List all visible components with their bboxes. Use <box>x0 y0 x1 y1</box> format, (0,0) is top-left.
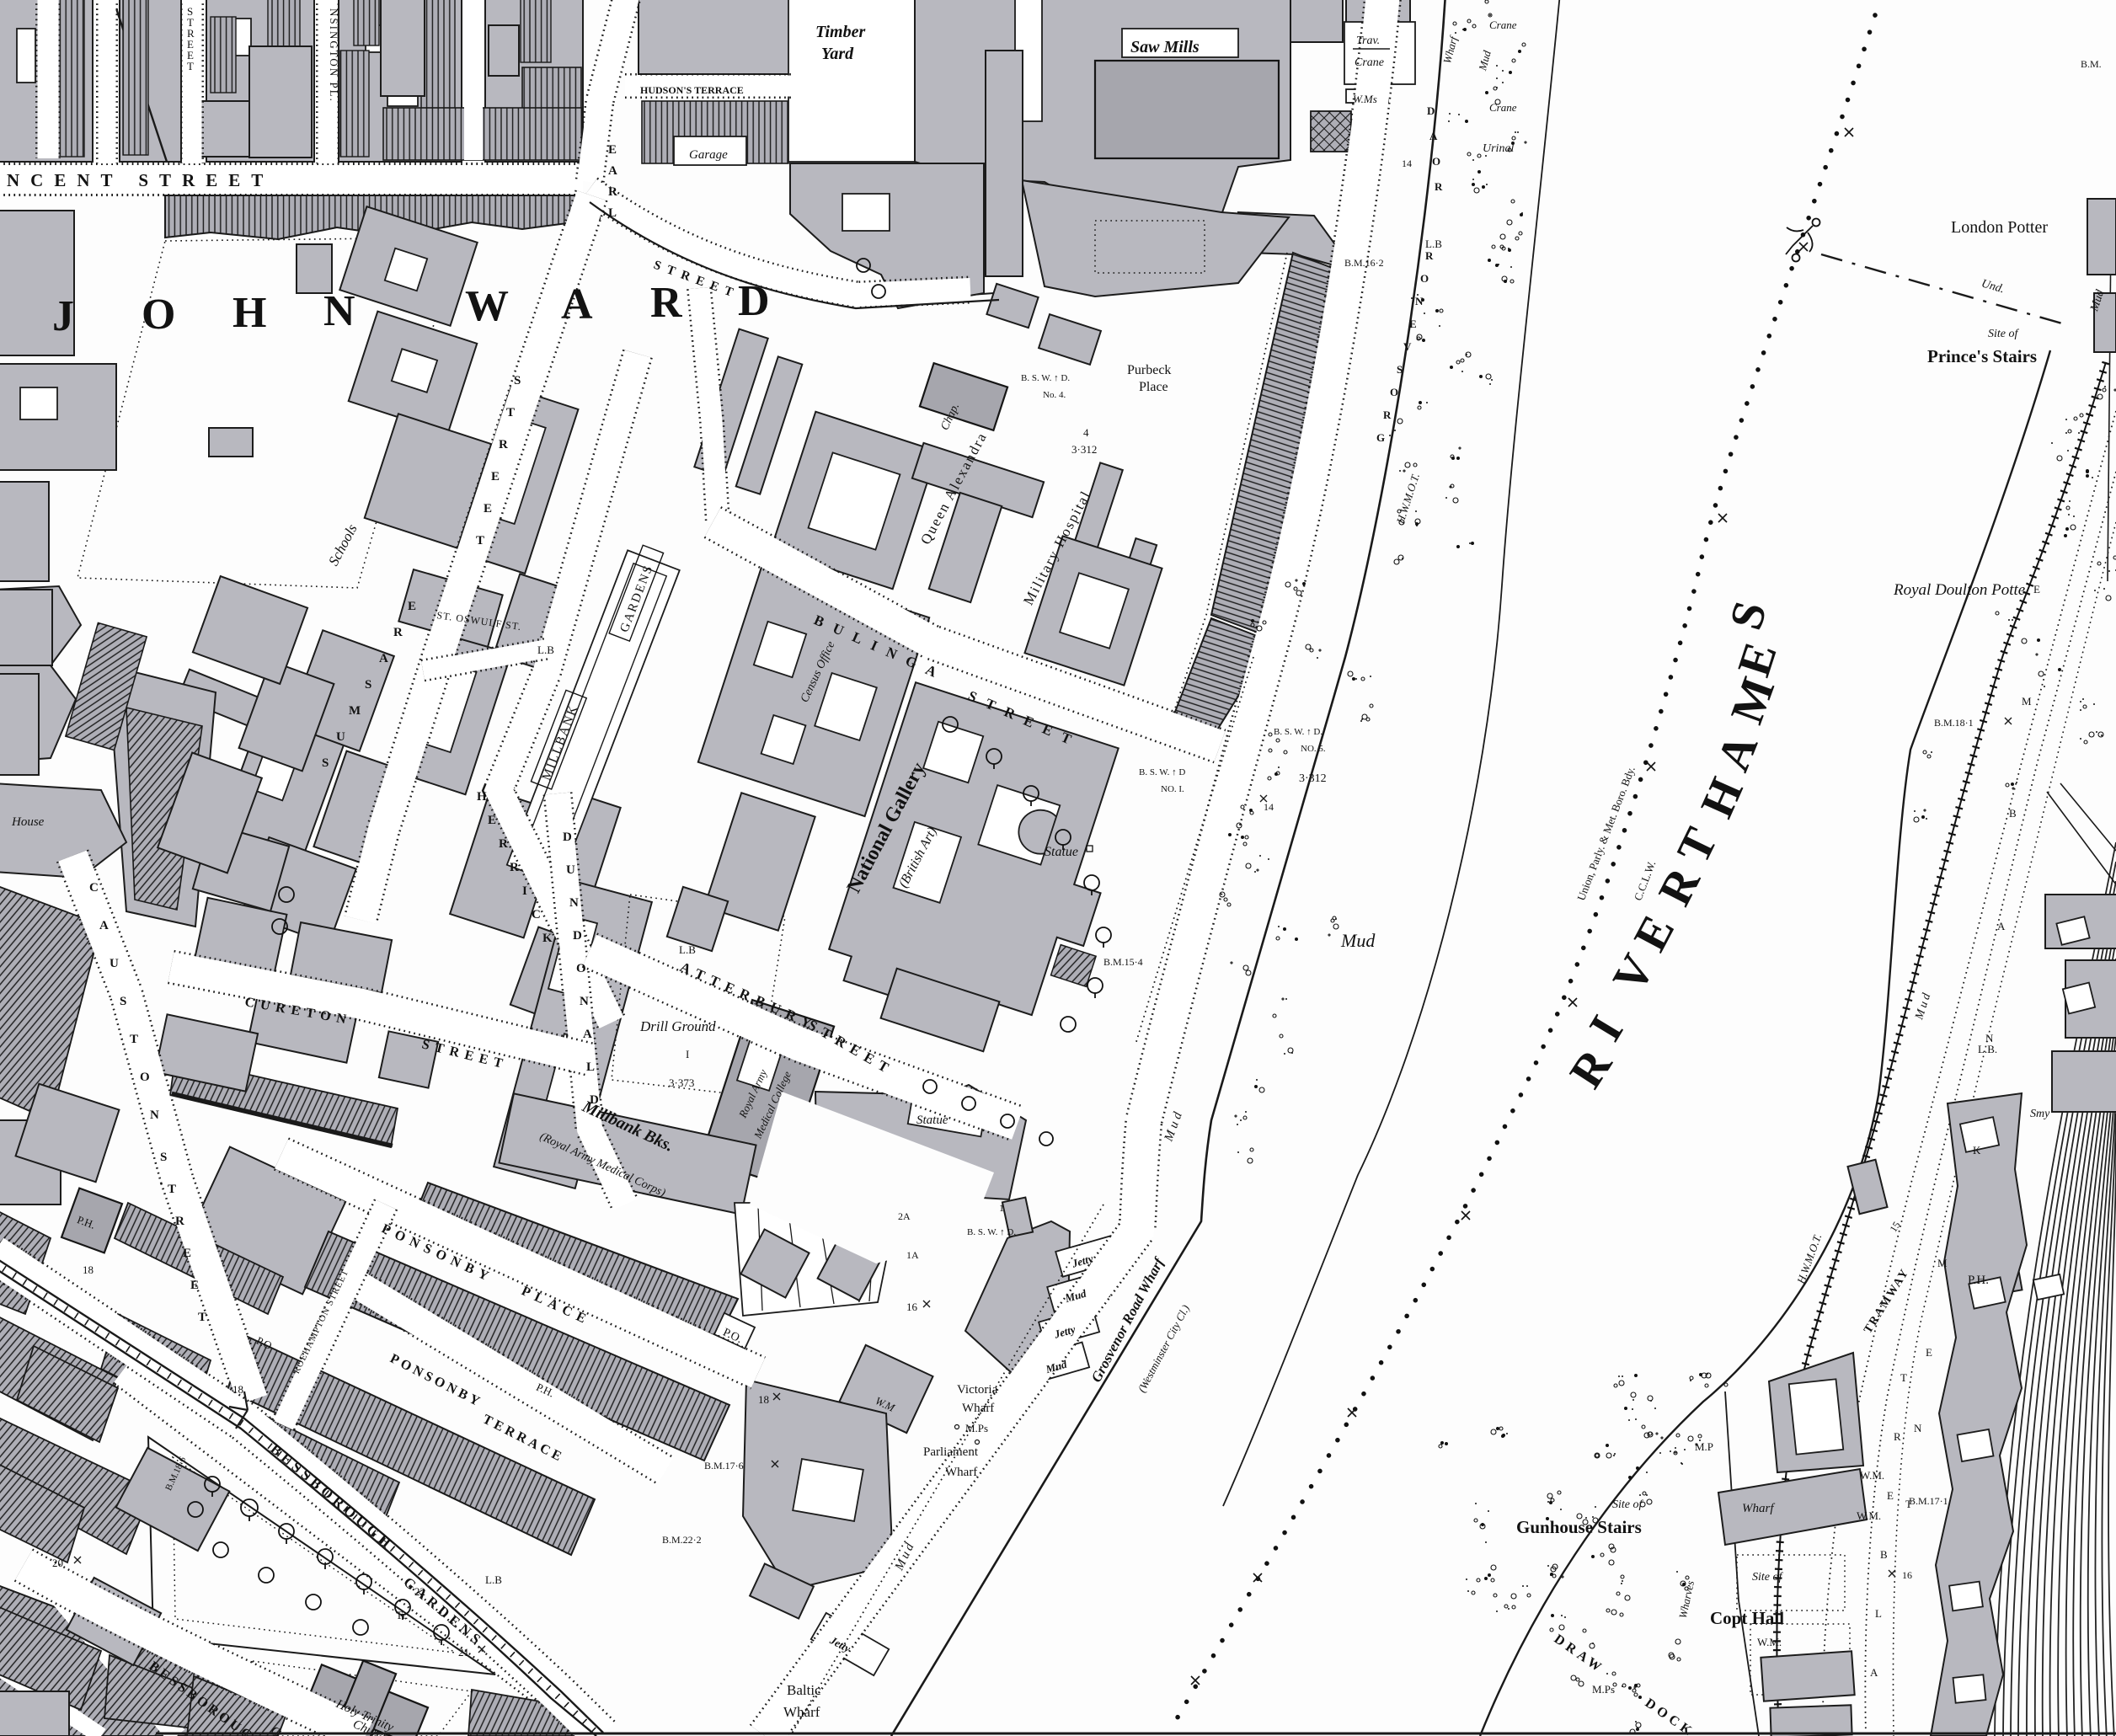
svg-text:K: K <box>1973 1144 1981 1156</box>
svg-text:2A: 2A <box>898 1210 911 1222</box>
svg-text:Statue: Statue <box>916 1114 948 1127</box>
svg-text:Timber: Timber <box>815 23 865 41</box>
svg-text:I: I <box>686 1048 689 1060</box>
svg-text:H: H <box>232 289 266 337</box>
svg-text:D: D <box>1427 104 1435 117</box>
svg-text:C: C <box>89 881 99 895</box>
svg-text:R: R <box>499 438 508 451</box>
svg-text:E: E <box>190 1279 199 1292</box>
svg-text:T: T <box>476 534 484 548</box>
svg-text:B.M.17·1: B.M.17·1 <box>1909 1495 1948 1507</box>
svg-text:O: O <box>576 962 586 975</box>
svg-text:R: R <box>175 1215 184 1228</box>
svg-text:M.Ps: M.Ps <box>1592 1683 1615 1696</box>
svg-text:U: U <box>336 730 345 744</box>
svg-text:W.M.: W.M. <box>1860 1469 1884 1482</box>
svg-text:M: M <box>1937 1257 1948 1269</box>
svg-text:A: A <box>1997 920 2006 932</box>
svg-text:E: E <box>484 502 492 515</box>
svg-text:N: N <box>569 896 579 910</box>
svg-text:Wharf: Wharf <box>783 1704 820 1720</box>
svg-text:14: 14 <box>1264 801 1274 813</box>
svg-text:B.M.15·4: B.M.15·4 <box>1103 956 1143 968</box>
svg-text:K: K <box>542 932 553 945</box>
svg-text:C: C <box>532 908 541 921</box>
svg-text:London Potter: London Potter <box>1951 218 2048 237</box>
svg-text:L: L <box>586 1060 595 1074</box>
svg-text:W.M.: W.M. <box>1757 1636 1782 1648</box>
svg-text:HUDSON'S TERRACE: HUDSON'S TERRACE <box>640 84 744 96</box>
svg-text:3·312: 3·312 <box>1071 443 1097 456</box>
svg-text:T: T <box>506 406 515 419</box>
svg-text:I: I <box>522 884 527 898</box>
svg-text:E: E <box>491 470 500 483</box>
svg-text:18: 18 <box>83 1263 94 1276</box>
svg-text:J: J <box>52 292 74 340</box>
svg-text:R: R <box>1894 1430 1901 1443</box>
svg-text:Purbeck: Purbeck <box>1127 363 1171 377</box>
svg-text:E: E <box>2033 583 2040 596</box>
svg-text:Wharf: Wharf <box>945 1466 977 1479</box>
svg-text:E: E <box>1926 1346 1932 1359</box>
svg-text:Wharf: Wharf <box>962 1402 994 1415</box>
svg-text:B.M.22·2: B.M.22·2 <box>662 1534 702 1546</box>
svg-text:NCENT STREET: NCENT STREET <box>7 170 274 190</box>
svg-text:W.M.: W.M. <box>1857 1509 1881 1522</box>
svg-text:N: N <box>1985 1032 1994 1044</box>
svg-text:B. S. W. ↑ D.: B. S. W. ↑ D. <box>1021 373 1070 383</box>
svg-text:R: R <box>510 861 519 874</box>
svg-text:B. S. W. ↑ D.: B. S. W. ↑ D. <box>967 1227 1016 1237</box>
svg-text:Site of: Site of <box>1988 328 2019 340</box>
svg-text:Wharf: Wharf <box>1742 1502 1775 1515</box>
svg-text:R: R <box>650 279 683 327</box>
svg-text:N: N <box>323 287 355 335</box>
svg-text:Tr.: Tr. <box>396 1609 408 1621</box>
svg-text:O: O <box>1390 386 1398 398</box>
svg-text:A: A <box>1870 1666 1878 1679</box>
svg-text:B: B <box>1880 1548 1888 1561</box>
svg-text:Copt Hall: Copt Hall <box>1710 1608 1784 1628</box>
svg-text:House: House <box>11 815 45 829</box>
svg-text:1A: 1A <box>906 1249 919 1261</box>
svg-text:Yard: Yard <box>821 45 854 63</box>
svg-text:B.M.16·2: B.M.16·2 <box>1344 257 1384 269</box>
svg-text:Smy: Smy <box>2030 1108 2050 1120</box>
svg-text:Victoria: Victoria <box>957 1383 998 1397</box>
svg-text:V: V <box>1403 340 1412 353</box>
svg-text:18: 18 <box>758 1393 769 1406</box>
svg-text:E: E <box>408 600 416 613</box>
svg-text:3·312: 3·312 <box>1299 772 1327 785</box>
svg-text:Urinal: Urinal <box>1483 142 1514 155</box>
svg-text:O: O <box>1432 155 1440 168</box>
svg-text:R: R <box>499 837 508 851</box>
svg-text:S: S <box>514 374 521 387</box>
svg-text:E: E <box>183 1247 191 1260</box>
svg-text:E: E <box>488 814 496 827</box>
svg-text:B. S. W. ↑ D.: B. S. W. ↑ D. <box>1274 727 1322 737</box>
svg-text:L.B: L.B <box>679 943 696 956</box>
svg-text:N: N <box>150 1108 159 1122</box>
svg-text:S: S <box>365 678 371 692</box>
svg-text:14: 14 <box>1402 158 1412 169</box>
svg-text:M: M <box>349 704 361 718</box>
svg-text:Royal Doulton Potte: Royal Doulton Potte <box>1893 581 2025 599</box>
svg-text:M: M <box>2022 695 2032 708</box>
svg-text:Prince's Stairs: Prince's Stairs <box>1927 346 2037 366</box>
svg-text:B.M.: B.M. <box>2081 58 2102 70</box>
svg-text:A: A <box>99 919 109 932</box>
svg-text:B. S. W. ↑ D: B. S. W. ↑ D <box>1139 767 1185 777</box>
svg-text:16: 16 <box>1902 1569 1912 1581</box>
svg-text:NSINGTON PL.: NSINGTON PL. <box>328 8 340 103</box>
svg-text:A: A <box>583 1028 592 1041</box>
svg-text:D: D <box>563 831 572 844</box>
svg-text:P.H.: P.H. <box>1968 1274 1989 1287</box>
svg-text:R: R <box>1425 249 1434 262</box>
svg-text:O: O <box>140 1071 150 1084</box>
svg-text:Crane: Crane <box>1355 56 1384 69</box>
svg-text:Trav.: Trav. <box>1356 35 1380 47</box>
svg-text:U: U <box>110 957 119 970</box>
svg-text:A: A <box>379 652 388 665</box>
svg-text:M.Ps: M.Ps <box>965 1422 988 1434</box>
svg-text:18: 18 <box>232 1383 243 1396</box>
svg-text:L.B: L.B <box>537 644 554 656</box>
svg-text:B.M.17·6: B.M.17·6 <box>704 1460 744 1472</box>
svg-text:R: R <box>1383 409 1392 421</box>
svg-text:Saw Mills: Saw Mills <box>1130 38 1200 56</box>
svg-text:Baltic: Baltic <box>787 1682 821 1698</box>
svg-text:H: H <box>477 790 487 804</box>
svg-text:D: D <box>738 277 770 325</box>
svg-text:O: O <box>142 291 175 339</box>
svg-text:Statue: Statue <box>1045 845 1078 859</box>
svg-text:22: 22 <box>414 1585 425 1598</box>
svg-text:S: S <box>160 1151 167 1164</box>
svg-text:U: U <box>566 863 575 877</box>
svg-text:R: R <box>393 626 403 639</box>
svg-text:L.B: L.B <box>1425 238 1442 250</box>
svg-text:Garage: Garage <box>689 148 728 162</box>
svg-text:Gunhouse Stairs: Gunhouse Stairs <box>1516 1517 1642 1537</box>
svg-text:G: G <box>1376 431 1385 444</box>
svg-text:T: T <box>198 1311 206 1324</box>
svg-text:B.M.18·1: B.M.18·1 <box>1934 717 1974 729</box>
svg-text:Crane: Crane <box>1489 101 1517 114</box>
svg-text:Site of: Site of <box>1612 1498 1643 1511</box>
svg-text:A: A <box>561 280 593 329</box>
svg-text:T: T <box>168 1183 176 1196</box>
svg-text:O: O <box>1420 272 1429 285</box>
svg-text:Mud: Mud <box>1340 930 1376 951</box>
svg-text:M.P: M.P <box>1695 1440 1713 1453</box>
svg-text:W.Ms: W.Ms <box>1353 93 1377 105</box>
svg-text:S: S <box>120 995 126 1008</box>
svg-text:NO. I.: NO. I. <box>1161 784 1184 794</box>
svg-text:N: N <box>580 995 589 1008</box>
svg-text:E: E <box>1409 318 1417 330</box>
svg-text:L.B.: L.B. <box>1978 1043 1997 1055</box>
svg-text:Crane: Crane <box>1489 19 1517 31</box>
svg-text:R: R <box>1435 180 1443 193</box>
svg-text:W: W <box>465 282 509 330</box>
svg-text:E: E <box>1887 1489 1894 1502</box>
svg-text:N: N <box>1914 1422 1922 1434</box>
svg-text:16: 16 <box>906 1301 918 1313</box>
svg-text:Place: Place <box>1139 380 1168 394</box>
svg-text:4: 4 <box>1083 426 1089 439</box>
svg-text:No. 4.: No. 4. <box>1043 390 1066 400</box>
svg-text:Drill Ground: Drill Ground <box>639 1018 716 1034</box>
svg-text:A: A <box>1429 130 1438 142</box>
svg-text:20: 20 <box>52 1557 63 1569</box>
svg-text:S: S <box>1397 363 1403 376</box>
svg-text:3·373: 3·373 <box>669 1076 694 1089</box>
svg-text:D: D <box>573 929 582 943</box>
svg-text:Site of: Site of <box>1752 1571 1783 1584</box>
svg-text:T: T <box>130 1033 138 1046</box>
svg-text:L: L <box>1875 1607 1882 1620</box>
svg-text:S: S <box>322 756 329 770</box>
svg-text:NO. 5.: NO. 5. <box>1301 744 1326 754</box>
svg-text:1: 1 <box>999 1202 1004 1214</box>
svg-text:N: N <box>1415 295 1424 307</box>
svg-text:Parliament: Parliament <box>923 1445 979 1459</box>
svg-text:B: B <box>2009 807 2017 820</box>
svg-text:21: 21 <box>458 1646 469 1659</box>
svg-text:T: T <box>1900 1371 1907 1384</box>
svg-text:L.B: L.B <box>485 1573 502 1586</box>
